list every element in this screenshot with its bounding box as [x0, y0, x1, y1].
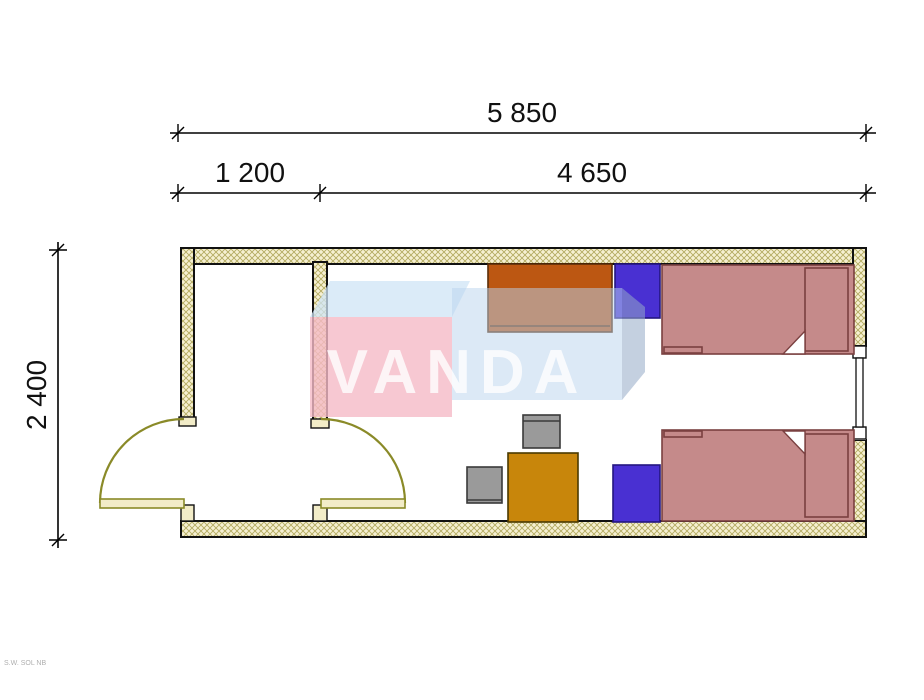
watermark-side-face: [622, 288, 645, 400]
entrance-door-swing-arc: [100, 419, 184, 503]
pillow-bottom-bed: [805, 434, 848, 517]
table: [508, 453, 578, 522]
bed-top: [662, 265, 854, 354]
corner-note: S.W. SOL NB: [4, 660, 46, 667]
window-glazing: [856, 358, 863, 427]
interior-door: [321, 419, 405, 508]
dimension-label-depth: 2 400: [21, 360, 52, 430]
entrance-door-leaf: [100, 499, 184, 508]
watermark-text: VANDA: [327, 338, 588, 407]
floor-plan-drawing: 5 850 1 200 4 650 2 400: [0, 0, 924, 700]
chair-left: [467, 467, 502, 503]
wall-right-upper: [853, 248, 866, 346]
nightstand-bottom: [613, 465, 660, 522]
wall-left: [181, 248, 194, 420]
window-frame-bottom: [853, 427, 866, 439]
dimension-sections: 1 200 4 650: [170, 157, 876, 202]
window: [853, 346, 866, 440]
watermark: VANDA: [310, 281, 645, 417]
floor-plan-canvas: 5 850 1 200 4 650 2 400: [0, 0, 924, 700]
dimension-label-total-width: 5 850: [487, 97, 557, 128]
pillow-top-bed: [805, 268, 848, 351]
window-frame-top: [853, 346, 866, 358]
bed-bottom: [662, 430, 854, 521]
interior-door-swing-arc: [321, 419, 405, 503]
wall-end-cap-partition: [311, 419, 329, 428]
dimension-label-left-section: 1 200: [215, 157, 285, 188]
entrance-door: [100, 419, 184, 508]
watermark-top-face: [310, 281, 470, 317]
chair-top: [523, 415, 560, 448]
doors: [100, 419, 405, 508]
interior-door-leaf: [321, 499, 405, 508]
dimension-total-width: 5 850: [170, 97, 876, 142]
wall-bottom: [181, 521, 866, 537]
wall-top: [181, 248, 866, 264]
dimension-label-right-section: 4 650: [557, 157, 627, 188]
dimension-depth: 2 400: [21, 242, 67, 548]
